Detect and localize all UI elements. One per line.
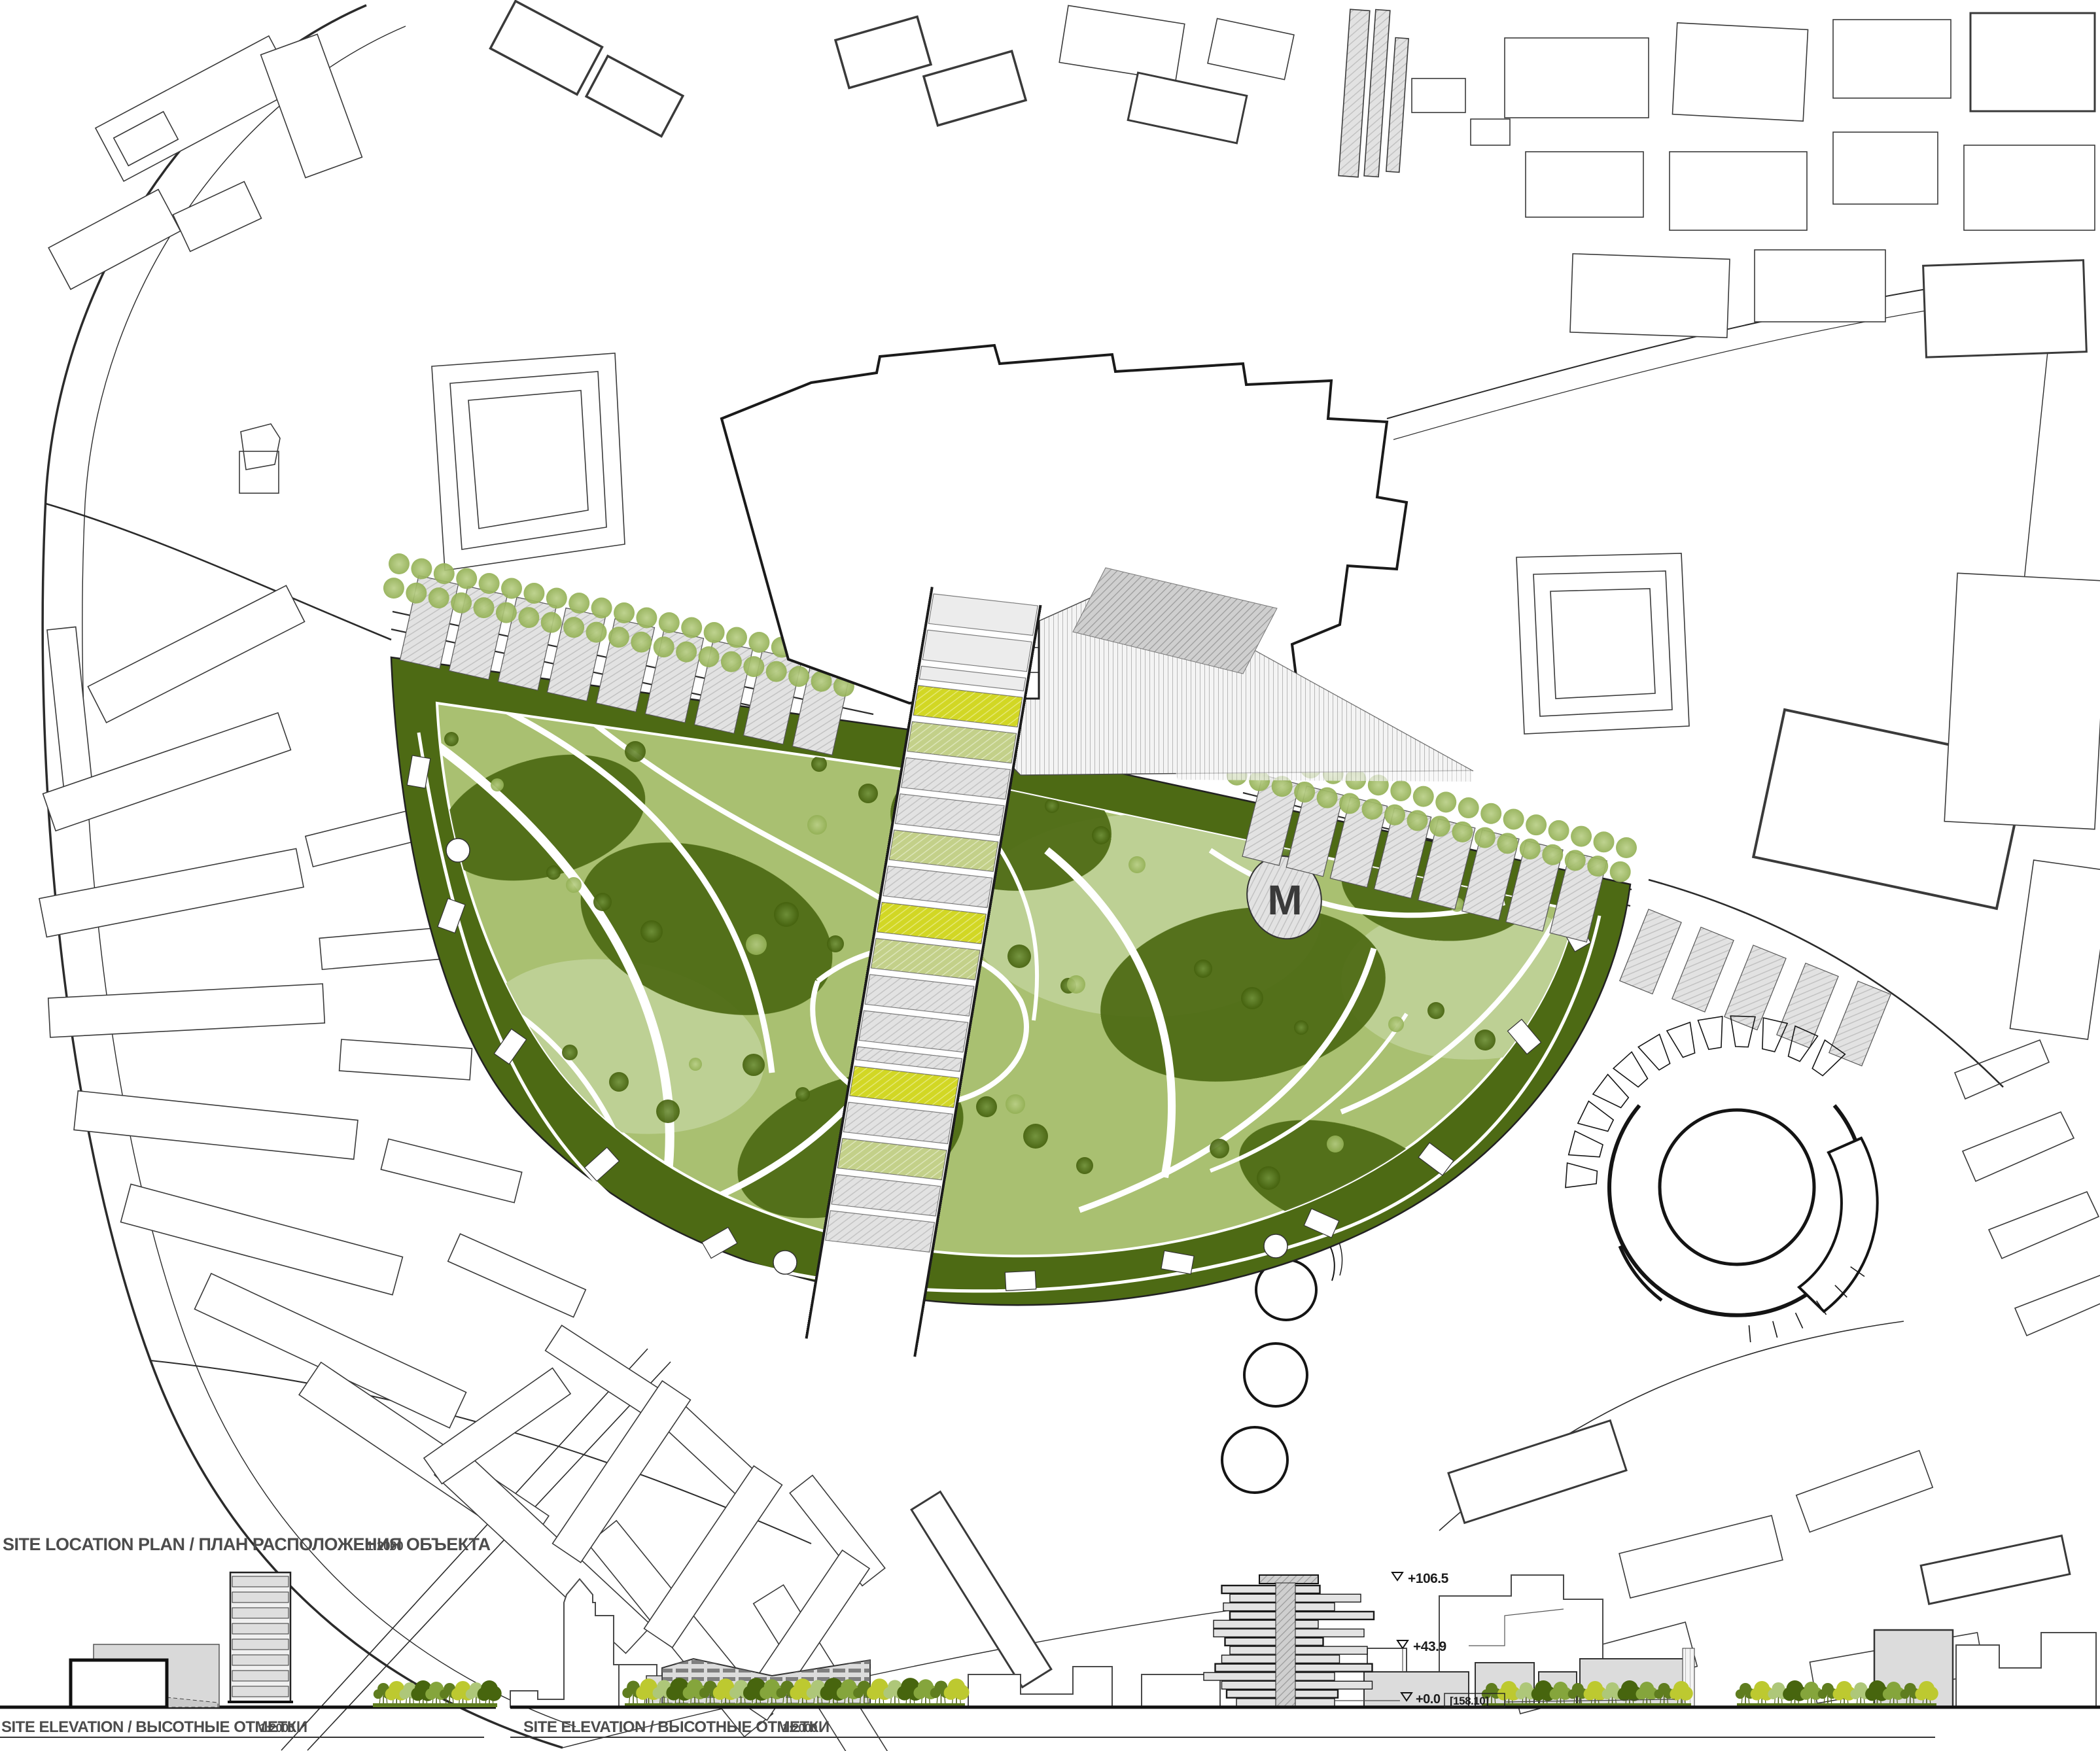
plan-title-label: SITE LOCATION PLAN / ПЛАН РАСПОЛОЖЕНИЯ О… (3, 1534, 491, 1554)
elev2-stacked-tower (1204, 1575, 1374, 1707)
level-annotation-top: +106.5 (1392, 1571, 1449, 1586)
drawing-canvas: M SITE LOCATION P (0, 0, 2100, 1751)
elev1-striped-tower (228, 1572, 293, 1702)
level-top-value: +106.5 (1408, 1571, 1449, 1586)
top-center-blocks (491, 1, 1465, 177)
level-ground-value: +0.0 (1416, 1692, 1441, 1707)
elevation-left-scale: 1:2000 (260, 1722, 295, 1735)
level-mid-value: +43.9 (1413, 1639, 1446, 1654)
elevation-strip-left: SITE ELEVATION / ВЫСОТНЫЕ ОТМЕТКИ 1:2000 (0, 1572, 502, 1737)
level-ground-datum: [158.10] (1450, 1695, 1488, 1707)
plan-title: SITE LOCATION PLAN / ПЛАН РАСПОЛОЖЕНИЯ О… (3, 1534, 491, 1554)
elev1-trees (374, 1680, 502, 1706)
park-logo-letter: M (1267, 876, 1301, 924)
elevation-right-scale: 1:2000 (782, 1722, 818, 1735)
site-plan-sheet: M SITE LOCATION P (0, 0, 2100, 1751)
top-right-blocks (1471, 13, 2095, 357)
eye-building (1566, 1016, 1878, 1342)
plan-title-scale: 1:2000 (366, 1540, 403, 1553)
elev1-hedge (373, 1703, 497, 1707)
elev1-white-building (71, 1660, 167, 1707)
